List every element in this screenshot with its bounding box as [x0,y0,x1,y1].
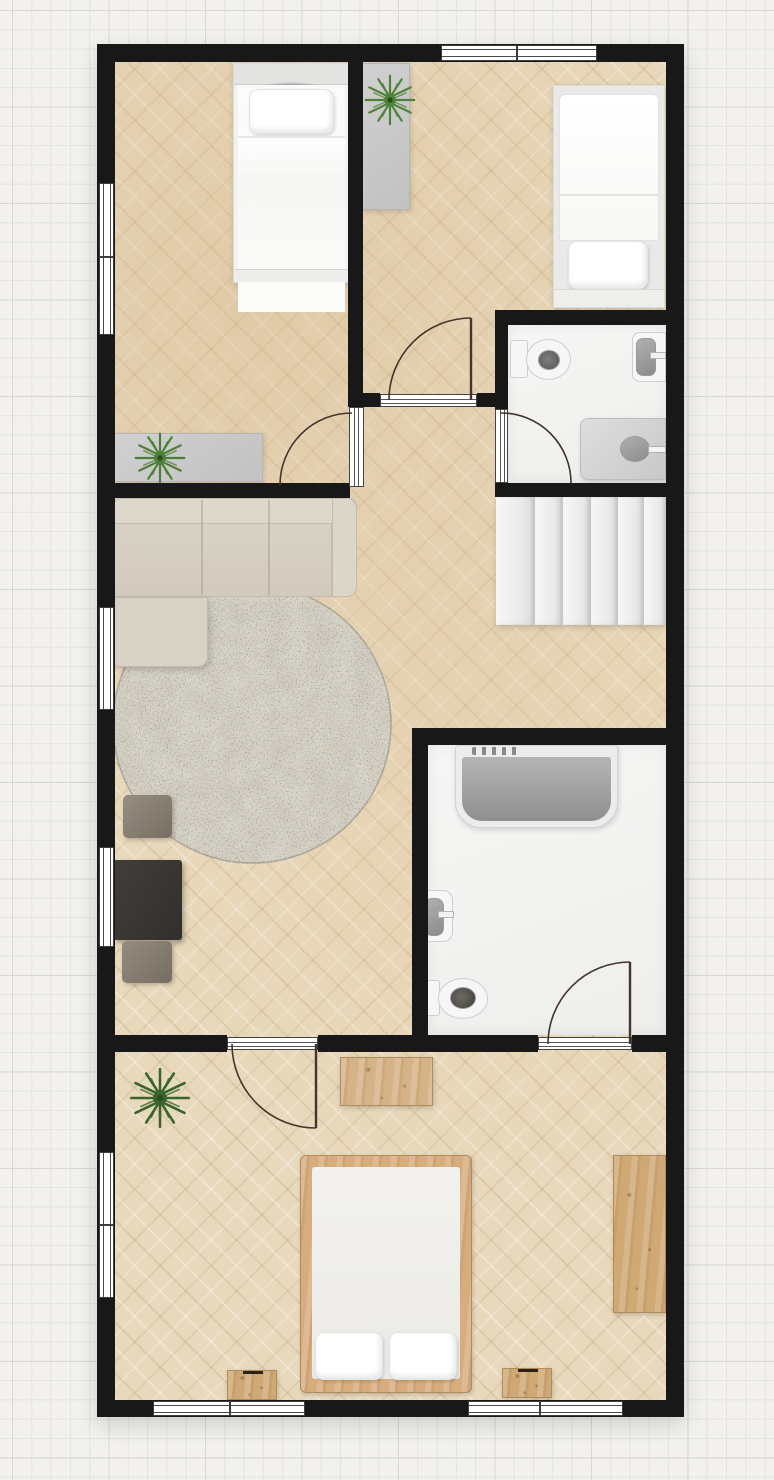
corner-sofa-backrest[interactable] [113,498,357,524]
bathtub-basin [462,757,611,821]
sideboard[interactable] [113,433,263,482]
faucet [648,446,666,453]
wall-bedroom-bottom-top-a[interactable] [97,1035,227,1052]
wall-bathroom-large-left[interactable] [412,728,428,1035]
stair-tread [496,497,534,625]
bed-pillow [568,241,648,289]
bed-duvet [559,94,659,241]
bench[interactable] [340,1057,433,1106]
faucet [438,911,454,918]
window-divider [516,45,518,61]
window-bottom-2[interactable] [468,1401,623,1416]
door-frame-bathroom-small[interactable] [495,409,508,483]
window-divider [99,1224,114,1226]
toilet-bowl-inner [538,350,560,370]
bed-footboard [234,269,349,282]
wardrobe[interactable] [362,63,410,210]
corner-sofa-chaise[interactable] [113,597,208,667]
wall-living-top[interactable] [110,483,350,498]
wall-bathroom-large-top[interactable] [412,728,666,745]
bed-duvet [238,136,345,269]
bed-pillow [389,1332,457,1380]
window-divider [539,1401,541,1416]
nightstand-handle [243,1371,263,1374]
wall-exterior-right[interactable] [666,44,684,1417]
window-divider [99,256,114,258]
stair-tread [617,497,643,625]
wall-bedroom2-bottom-left[interactable] [348,393,380,407]
stair-tread [534,497,562,625]
floor-plan-canvas [0,0,774,1480]
door-frame-bedroom-top-right[interactable] [380,394,477,407]
corner-sofa-seat[interactable] [113,523,332,597]
wall-bedroom-bottom-top-c[interactable] [632,1035,684,1052]
bathtub-taps [472,747,520,755]
corner-sofa-armrest[interactable] [332,498,357,597]
wall-bathroom-small-bottom[interactable] [495,483,666,497]
nightstand-handle [518,1369,538,1372]
stair-tread [590,497,617,625]
desk[interactable] [613,1155,666,1313]
coffee-table[interactable] [113,860,182,940]
toilet-bowl-inner [450,987,476,1009]
stair-tread [643,497,666,625]
nightstand[interactable] [502,1368,552,1398]
single-bed[interactable] [553,85,665,308]
wall-bedrooms-divider[interactable] [348,62,363,393]
vanity-basin [620,436,650,462]
wall-bathroom-small-top[interactable] [495,310,666,325]
window-top[interactable] [441,45,597,61]
stair-tread [562,497,590,625]
single-bed[interactable] [233,63,350,283]
nightstand[interactable] [227,1370,277,1400]
double-bed-frame[interactable] [300,1155,472,1393]
door-frame-living[interactable] [227,1037,318,1050]
door-frame-bathroom-large[interactable] [538,1037,632,1050]
faucet [650,352,666,359]
stool[interactable] [123,795,172,838]
window-divider [229,1401,231,1416]
bed-duvet-fold [559,194,659,196]
window-left-3[interactable] [99,847,114,947]
bed-footboard [554,289,664,307]
window-left-1[interactable] [99,183,114,335]
door-frame-bedroom-top-left[interactable] [349,407,364,487]
window-left-2[interactable] [99,607,114,710]
staircase[interactable] [496,497,666,625]
sofa-seam [201,500,203,595]
bed-pillow [249,89,334,134]
stool[interactable] [122,941,172,983]
wall-bedroom-bottom-top-b[interactable] [318,1035,538,1052]
sofa-seam [268,500,270,595]
bed-pillow [315,1332,383,1380]
